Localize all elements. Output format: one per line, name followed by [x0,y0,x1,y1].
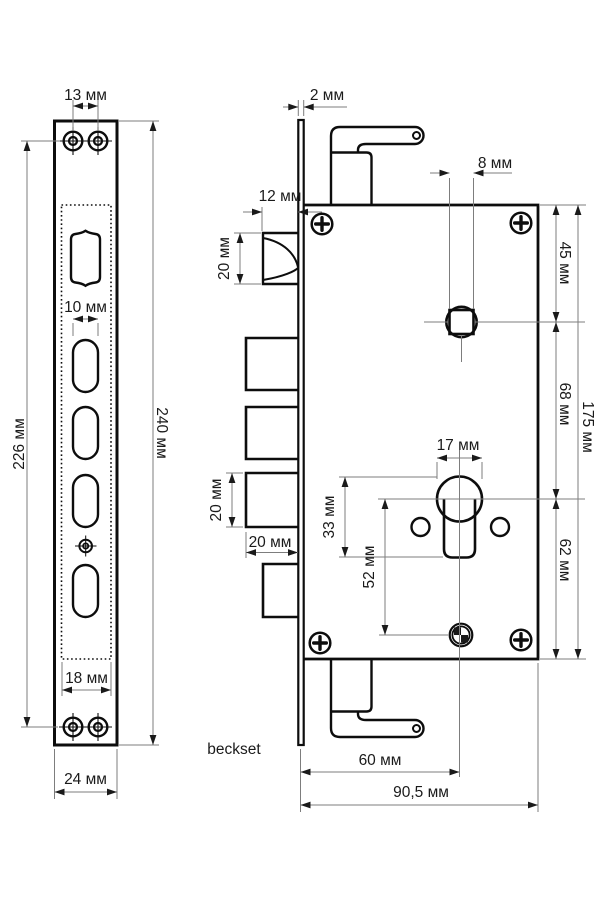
dim-cylinder-to-fixing-hole: 52 мм [361,499,448,635]
dim-label: 12 мм [259,188,302,205]
cylinder-hole [378,450,585,777]
drawing-canvas: 13 мм 226 мм 240 мм 10 мм 18 мм 24 мм 2 … [0,0,600,900]
phillips-screw [511,630,532,651]
dim-label: 52 мм [361,546,378,589]
dim-label: 24 мм [64,771,107,788]
dim-label: 17 мм [437,437,480,454]
dim-label: 20 мм [216,237,233,280]
faceplate-outline [55,121,118,745]
backset-caption: beckset [207,741,261,758]
spindle-square [450,310,474,334]
latch-bolt [263,233,298,284]
dim-lines [73,100,98,131]
phillips-cross-icon [316,218,329,231]
dim-label: 45 мм [556,242,573,285]
dim-label: 60 мм [359,752,402,769]
dim-spindle-to-cylinder: 68 мм [553,322,573,499]
dim-label: 68 мм [556,383,573,426]
deadbolt-2 [246,407,298,459]
dim-bolt-height: 20 мм [208,473,243,527]
screw-hole-crosshair [84,127,112,155]
screw-hole-crosshair [84,713,112,741]
dim-latch-height: 20 мм [216,233,261,284]
dim-faceplate-thickness: 2 мм [283,87,347,116]
bottom-hook-arm [331,659,424,737]
dim-lines [430,173,512,309]
faceplate-front-view [55,121,118,745]
dim-latch-protrusion: 12 мм [243,188,322,231]
bolt-slot [73,475,98,527]
lock-body-outline [304,205,538,659]
small-screw-hole-crosshair [75,536,97,557]
hook-arm-base [331,659,372,712]
bolt-slot [73,407,98,459]
stepped-slot-icon [454,628,468,643]
security-screw [450,624,473,647]
screw-hole-crosshair [59,127,87,155]
dim-lines [339,477,443,557]
phillips-cross-icon [314,637,327,650]
dim-backset: 60 мм [301,749,460,812]
hook-arm-base [331,153,372,206]
dim-cylinder-profile-height: 33 мм [321,477,443,557]
phillips-cross-icon [515,217,528,230]
phillips-screw [310,633,331,654]
hook-pivot-hole [413,725,420,732]
spindle-hole [424,307,585,362]
spindle-circle [446,307,476,337]
dim-label: 90,5 мм [393,784,449,801]
crossbolt-hole [71,231,100,286]
dim-arrowheads [288,104,313,111]
dim-label: 226 мм [11,418,28,469]
dim-label: 240 мм [153,407,170,458]
deadbolt-1 [246,338,298,390]
dim-label: 20 мм [208,479,225,522]
dim-label: 175 мм [579,401,596,452]
dim-label: 33 мм [321,496,338,539]
lock-technical-drawing: 13 мм 226 мм 240 мм 10 мм 18 мм 24 мм 2 … [0,0,600,900]
screw-hole-crosshair [59,713,87,741]
dim-label: 13 мм [64,87,107,104]
dim-top-to-spindle: 45 мм [540,205,586,322]
deadbolt-3 [246,473,298,527]
dim-spindle-square: 8 мм [430,155,512,309]
dim-label: 18 мм [65,670,108,687]
top-hook-arm [331,127,424,205]
dim-faceplate-screw-spacing: 13 мм [64,87,107,131]
latch-bevel-curves [263,238,298,280]
fixing-hole-right [491,518,509,536]
dim-label: 2 мм [310,87,344,104]
dim-faceplate-cutout-width: 18 мм [62,662,111,696]
dim-arrowheads [252,209,308,216]
dim-label: 10 мм [64,299,107,316]
dim-faceplate-hole-width: 10 мм [64,299,107,336]
dim-label: 62 мм [556,539,573,582]
dim-label: 20 мм [249,534,292,551]
dim-faceplate-width: 24 мм [55,749,118,799]
hook-pivot-hole [413,132,420,139]
bolt-slot [73,565,98,617]
dim-faceplate-height: 240 мм [119,121,170,745]
hook-arm-outline [331,659,424,737]
crosshair-ticks [75,536,97,557]
dim-lines [379,499,448,635]
phillips-cross-icon [515,634,528,647]
phillips-screw [511,213,532,234]
hook-arm-outline [331,127,424,205]
faceplate-edge-view [298,120,303,745]
dim-lines [119,121,159,745]
dim-bolt-width: 20 мм [246,532,298,558]
dim-body-height: 175 мм [575,205,596,659]
dim-lines [73,319,98,336]
fixing-hole-left [412,518,430,536]
dim-label: 8 мм [478,155,512,172]
dim-faceplate-screw-centers: 226 мм [11,141,60,727]
bolt-slot [73,340,98,392]
cylinder-centerlines [378,450,585,777]
lock-body-side-view [246,120,585,777]
phillips-screw [312,214,333,235]
faceplate-body-region-dashed [62,205,112,659]
dim-cylinder-to-bottom: 62 мм [540,499,586,659]
deadbolt-4 [263,564,298,617]
